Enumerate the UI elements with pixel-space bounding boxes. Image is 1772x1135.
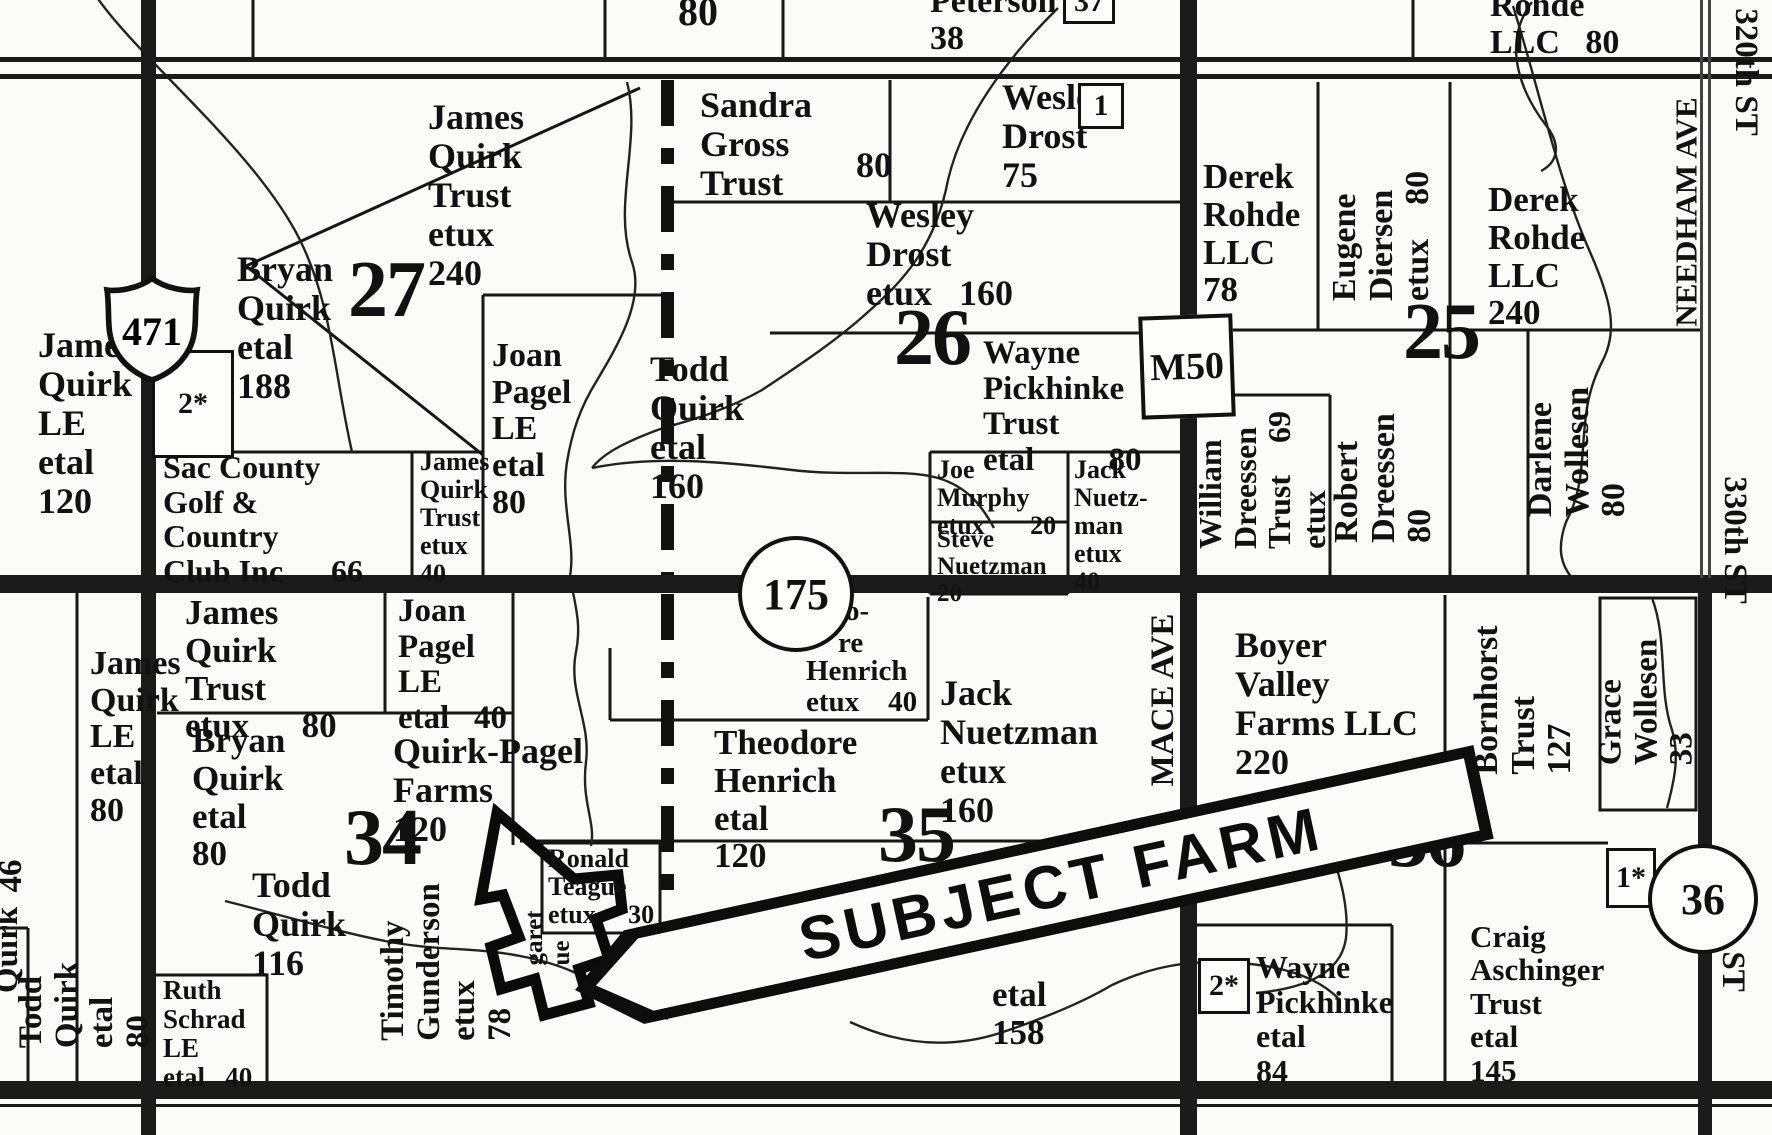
parcel-label: Robert Dreessen 80	[1329, 413, 1439, 543]
road-320th-st	[0, 74, 1772, 79]
parcel-label: Bryan Quirk etal 80	[192, 722, 285, 873]
road-mace-ave	[1180, 0, 1197, 1135]
parcel-label: Sandra Gross Trust	[700, 86, 812, 203]
parcel-label: etal 158	[992, 976, 1046, 1052]
parcel-label: NEEDHAM AVE	[1669, 97, 1702, 326]
section-number: 25	[1403, 292, 1479, 372]
parcel-label: Derek Rohde LLC 78	[1203, 158, 1300, 309]
parcel-label: Jack Nuetzman etux 160	[940, 674, 1098, 830]
parcel-label: Theodore Henrich etal 120	[714, 724, 857, 875]
parcel-label: MACE AVE	[1146, 614, 1182, 787]
parcel-label: 46	[0, 860, 30, 893]
parcel-label: 80	[856, 146, 892, 185]
us-71-highway-shield: 471	[102, 274, 202, 386]
parcel-label: 320th ST	[1727, 8, 1763, 135]
parcel-label: James Quirk Trust etux 240	[428, 98, 524, 292]
road-340th-st	[0, 1104, 1772, 1107]
parcel-label: Quirk-Pagel Farms 120	[393, 732, 583, 849]
parcel-label: 330th ST	[1716, 476, 1752, 603]
parcel-label: Craig Aschinger Trust etal 145	[1470, 920, 1604, 1087]
parcel-label: 80	[678, 0, 718, 33]
parcel-label: Peterson 38	[930, 0, 1057, 57]
parcel-label: Steve Nuetzman 20	[937, 526, 1047, 607]
parcel-badge: 37	[1063, 0, 1115, 24]
parcel-label: Todd Quirk 116	[252, 866, 346, 983]
parcel-badge: 1	[1078, 83, 1124, 129]
svg-text:471: 471	[122, 309, 182, 354]
highway-175-circle: 175	[738, 536, 854, 652]
route-36-circle: 36	[1648, 844, 1758, 954]
parcel-label: Wayne Pickhinke etal 84	[1256, 950, 1393, 1088]
parcel-label: Eugene Diersen etux 80	[1327, 171, 1437, 301]
parcel-label: Rohde LLC 80	[1490, 0, 1619, 61]
parcel-badge: 2*	[1198, 958, 1250, 1014]
parcel-label: Sac County Golf & Country Club Inc 66	[163, 450, 363, 588]
parcel-label: James Quirk Trust etux 40	[420, 448, 489, 588]
parcel-label: Todd Quirk etal 80	[14, 962, 157, 1048]
parcel-label: Timothy Gunderson etux 78	[376, 883, 519, 1041]
section-number: 27	[348, 250, 424, 330]
m50-route-box: M50	[1138, 313, 1236, 419]
parcel-label: Joan Pagel LE etal 80	[492, 338, 571, 522]
parcel-label: William Dreessen Trust 69 etux	[1193, 411, 1331, 549]
section-number: 26	[894, 298, 970, 378]
road-needham-ave	[1708, 0, 1711, 578]
parcel-label: Derek Rohde LLC 240	[1488, 181, 1585, 332]
parcel-label: Todd Quirk etal 160	[650, 350, 744, 506]
parcel-label: Henrich etux 40	[806, 656, 917, 719]
parcel-label: Bornhorst Trust 127	[1469, 625, 1579, 774]
parcel-label: Bryan Quirk etal 188	[237, 250, 333, 406]
parcel-label: Grace Wollesen 33	[1594, 639, 1701, 766]
section-number: 34	[344, 798, 420, 878]
parcel-label: Jack Nuetz- man etux 40	[1074, 456, 1148, 596]
parcel-label: Boyer Valley Farms LLC 220	[1235, 626, 1418, 782]
parcel-label: James Quirk LE etal 80	[90, 646, 181, 830]
parcel-label: Joan Pagel LE etal 40	[398, 594, 507, 737]
section-dashed-line	[661, 594, 674, 912]
plat-map: 471 M50 175 36 80Peterson 38Rohde LLC 80…	[0, 0, 1772, 1135]
parcel-label: Darlene Wollesen 80	[1523, 387, 1633, 517]
parcel-label: Quirk	[0, 907, 26, 993]
parcel-label: Ruth Schrad LE etal 40	[163, 976, 252, 1093]
